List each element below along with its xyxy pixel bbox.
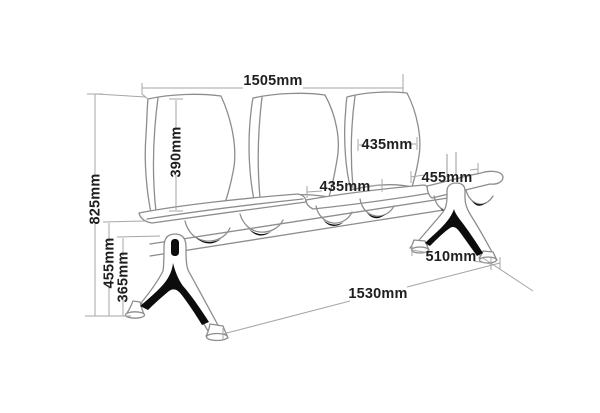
dim-seat-width-label: 435mm [320,179,371,195]
dim-foot-depth-label: 510mm [426,249,477,265]
dim-underseat-clearance-label: 365mm [116,252,132,303]
dim-seat-depth-label: 455mm [422,170,473,186]
bench-dimension-drawing: 1505mm 825mm 455mm 365mm 390mm 435mm 435… [0,0,600,413]
left-leg [126,234,229,341]
dim-base-length: 1530mm [223,257,500,340]
dimension-diagram-page: 1505mm 825mm 455mm 365mm 390mm 435mm 435… [0,0,600,413]
dim-base-length-label: 1530mm [348,286,407,302]
dim-seat-depth: 455mm [411,163,478,186]
left-leg-column-accent [171,239,179,256]
dim-total-width-label: 1505mm [243,73,302,89]
dim-backrest-height-label: 390mm [169,127,185,178]
dim-backrest-width: 435mm [358,137,417,153]
dim-backrest-width-label: 435mm [362,137,413,153]
seat-3-support-arch-2 [466,190,493,204]
backrest-1 [145,94,235,218]
dim-overall-height-label: 825mm [88,174,104,225]
backrest-1-panel [145,94,235,218]
left-leg-front-foot-pad [207,334,228,341]
left-leg-rear-foot-pad [126,312,145,318]
